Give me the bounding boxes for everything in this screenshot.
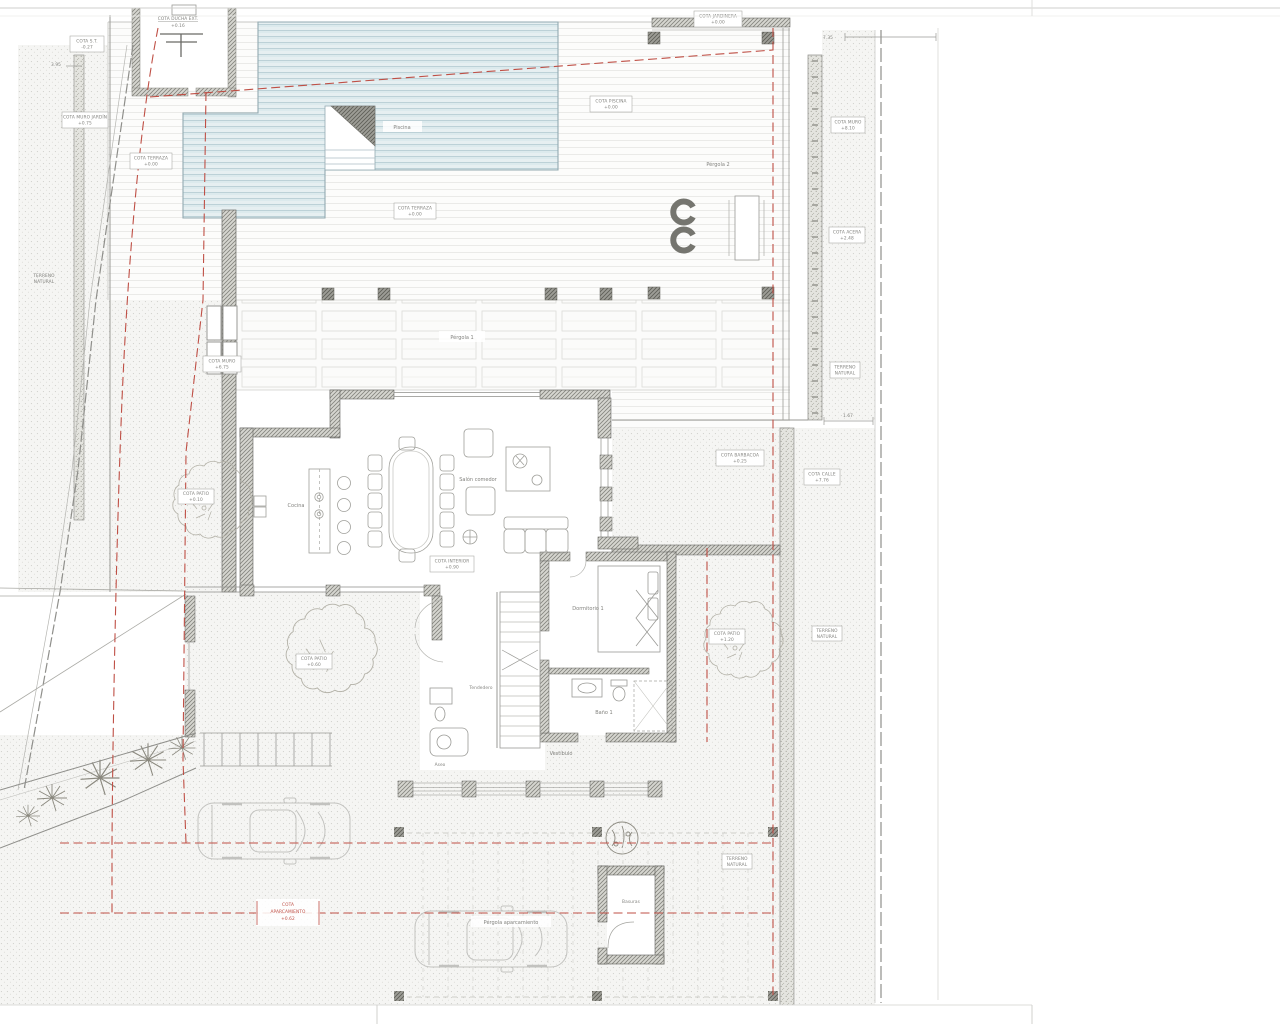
svg-text:COTA MURO: COTA MURO bbox=[834, 120, 862, 126]
dim-muro: 1.67 bbox=[843, 413, 853, 419]
svg-text:NATURAL: NATURAL bbox=[835, 371, 856, 377]
site-plan-page: Piscina COTA DUCHA EXT. +0.16 Pérgola 2 … bbox=[0, 0, 1280, 1024]
cota-muro-alto: COTA MURO +8.10 bbox=[831, 117, 865, 133]
east-retaining-wall-lower bbox=[780, 428, 794, 1005]
svg-text:NATURAL: NATURAL bbox=[817, 634, 838, 640]
cota-st: COTA S.T. -0.27 bbox=[70, 36, 104, 52]
svg-text:+7.76: +7.76 bbox=[815, 478, 829, 484]
pergola-2-label: Pérgola 2 bbox=[706, 161, 729, 168]
dormitorio-label: Dormitorio 1 bbox=[572, 606, 603, 612]
terreno-natural-bottom: TERRENO NATURAL bbox=[722, 854, 752, 869]
svg-text:+1.20: +1.20 bbox=[720, 637, 734, 643]
svg-text:COTA ACERA: COTA ACERA bbox=[833, 230, 861, 236]
svg-text:APARCAMIENTO: APARCAMIENTO bbox=[270, 909, 306, 915]
bbq-table bbox=[735, 196, 759, 260]
svg-text:COTA MURO: COTA MURO bbox=[208, 359, 236, 365]
svg-text:-0.27: -0.27 bbox=[81, 45, 93, 51]
svg-text:+0.75: +0.75 bbox=[78, 121, 92, 127]
svg-text:COTA MURO JARDÍN: COTA MURO JARDÍN bbox=[63, 114, 107, 121]
cota-barbacoa: COTA BARBACOA +0.25 bbox=[716, 450, 764, 466]
site-plan-drawing: Piscina COTA DUCHA EXT. +0.16 Pérgola 2 … bbox=[0, 0, 1280, 1024]
svg-text:+8.10: +8.10 bbox=[841, 126, 855, 132]
vestibulo-label: Vestíbulo bbox=[550, 750, 573, 757]
svg-text:COTA INTERIOR: COTA INTERIOR bbox=[435, 559, 470, 565]
svg-text:TERRENO: TERRENO bbox=[725, 856, 748, 862]
terreno-natural-right-2: TERRENO NATURAL bbox=[812, 626, 842, 641]
garden-retaining-wall bbox=[222, 210, 236, 592]
cota-patio-oeste: COTA PATIO +0.10 bbox=[178, 489, 214, 504]
svg-text:COTA PATIO: COTA PATIO bbox=[714, 631, 741, 637]
svg-text:+0.90: +0.90 bbox=[445, 565, 459, 571]
svg-text:+0.00: +0.00 bbox=[711, 20, 725, 26]
tendedero-label: Tendedero bbox=[468, 685, 492, 691]
bano-label: Baño 1 bbox=[595, 710, 613, 716]
pool-label: Piscina bbox=[393, 125, 410, 131]
svg-text:+0.00: +0.00 bbox=[408, 212, 422, 218]
parking-pergola-label: Pérgola aparcamiento bbox=[484, 919, 539, 926]
svg-text:TERRENO: TERRENO bbox=[815, 628, 838, 634]
svg-text:TERRENO: TERRENO bbox=[32, 273, 55, 279]
storage-label: Basuras bbox=[622, 899, 641, 905]
cota-muro-jardin: COTA MURO JARDÍN +0.75 bbox=[62, 112, 108, 128]
cota-terraza-b: COTA TERRAZA +0.00 bbox=[394, 203, 436, 219]
stair bbox=[497, 592, 540, 748]
cota-patio-central: COTA PATIO +0.60 bbox=[296, 654, 332, 669]
svg-text:COTA S.T.: COTA S.T. bbox=[76, 39, 97, 45]
storage-room: Basuras bbox=[598, 866, 664, 964]
svg-text:NATURAL: NATURAL bbox=[727, 862, 748, 868]
terreno-natural-right-1: TERRENO NATURAL bbox=[830, 362, 860, 378]
cota-jardinera: COTA JARDINERA +0.00 bbox=[694, 11, 742, 27]
svg-text:COTA PATIO: COTA PATIO bbox=[301, 656, 328, 662]
svg-text:TERRENO: TERRENO bbox=[833, 365, 856, 371]
svg-text:+0.25: +0.25 bbox=[733, 459, 747, 465]
pergola-1-slats bbox=[236, 300, 790, 390]
salon-label: Salón comedor bbox=[459, 476, 497, 483]
pool-steps bbox=[325, 106, 375, 170]
svg-text:+0.00: +0.00 bbox=[144, 162, 158, 168]
svg-text:COTA PISCINA: COTA PISCINA bbox=[595, 99, 626, 105]
cota-calle: COTA CALLE +7.76 bbox=[804, 469, 840, 485]
svg-text:+2.48: +2.48 bbox=[840, 236, 854, 242]
svg-text:COTA PATIO: COTA PATIO bbox=[183, 491, 210, 497]
dim-acera: 7.35 bbox=[823, 35, 833, 41]
cota-patio-este: COTA PATIO +1.20 bbox=[709, 629, 745, 644]
svg-text:+6.75: +6.75 bbox=[215, 365, 229, 371]
svg-text:NATURAL: NATURAL bbox=[34, 279, 55, 285]
svg-text:COTA TERRAZA: COTA TERRAZA bbox=[398, 206, 432, 212]
cota-ducha-label: COTA DUCHA EXT. bbox=[158, 16, 199, 22]
svg-text:+0.00: +0.00 bbox=[604, 105, 618, 111]
cota-ducha-value: +0.16 bbox=[171, 23, 185, 29]
svg-text:COTA TERRAZA: COTA TERRAZA bbox=[134, 156, 168, 162]
cota-piscina: COTA PISCINA +0.00 bbox=[590, 96, 632, 112]
svg-text:COTA: COTA bbox=[282, 902, 294, 908]
aseo-label: Aseo bbox=[435, 762, 446, 768]
dim-retranqueo: 3.95 bbox=[51, 62, 61, 68]
svg-text:+0.10: +0.10 bbox=[189, 497, 203, 503]
outdoor-shower: COTA DUCHA EXT. +0.16 bbox=[132, 5, 236, 97]
cocina-label: Cocina bbox=[288, 503, 305, 509]
cota-aparcamiento: COTA APARCAMIENTO +0.62 bbox=[256, 899, 320, 926]
svg-text:+0.62: +0.62 bbox=[281, 916, 295, 922]
cota-interior: COTA INTERIOR +0.90 bbox=[430, 556, 474, 572]
svg-text:COTA JARDINERA: COTA JARDINERA bbox=[699, 14, 737, 20]
svg-text:+0.60: +0.60 bbox=[307, 662, 321, 668]
svg-text:COTA CALLE: COTA CALLE bbox=[808, 472, 836, 478]
pergola-1-label: Pérgola 1 bbox=[450, 334, 473, 341]
cota-terraza-a: COTA TERRAZA +0.00 bbox=[130, 153, 172, 169]
cota-muro: COTA MURO +6.75 bbox=[203, 356, 241, 372]
cota-acera: COTA ACERA +2.48 bbox=[829, 227, 865, 243]
svg-text:COTA BARBACOA: COTA BARBACOA bbox=[721, 453, 759, 459]
